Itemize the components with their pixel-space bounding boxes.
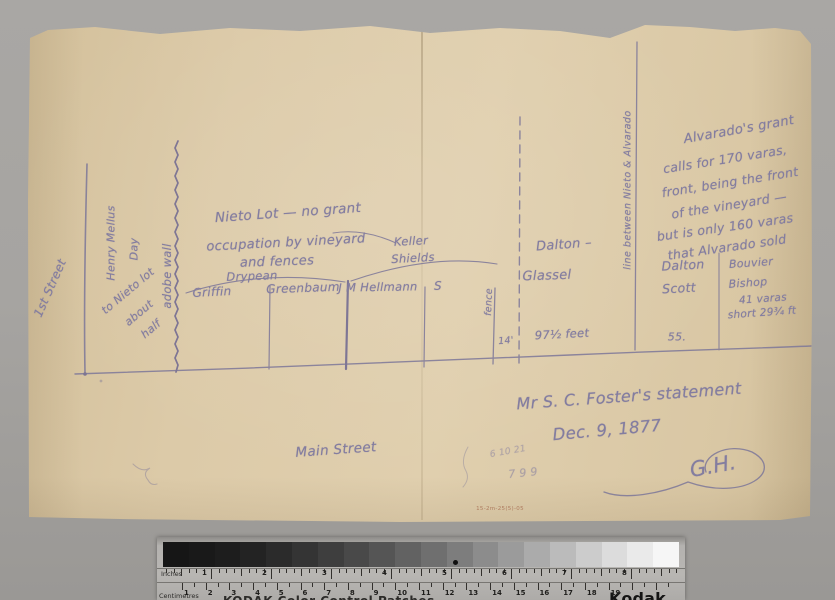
ruler-tick — [538, 583, 539, 590]
grayscale-step — [369, 542, 395, 567]
grayscale-step — [602, 542, 628, 567]
ruler-tick — [496, 569, 497, 573]
ruler-tick — [294, 569, 295, 573]
grayscale-step — [447, 542, 473, 567]
label-hellman: J M Hellmann — [338, 279, 417, 294]
ruler-tick — [489, 569, 490, 573]
ruler-number: 15 — [516, 589, 526, 597]
grayscale-step — [421, 542, 447, 567]
scribble-curl — [463, 447, 468, 487]
ruler-tick — [369, 569, 370, 573]
ruler-number: 5 — [442, 569, 447, 577]
ruler-number: 2 — [262, 569, 267, 577]
ruler-tick — [668, 583, 669, 587]
ruler-tick — [429, 569, 430, 573]
ruler-tick — [443, 583, 444, 590]
ruler-tick — [451, 569, 452, 579]
ruler-tick — [196, 569, 197, 573]
tiny-red-annotation: 15-2m-25(5)-05 — [476, 506, 524, 512]
ruler-tick — [519, 569, 520, 573]
kodak-scale-ruler: Inches Centimetres KODAK Color Control P… — [157, 537, 685, 600]
ruler-tick — [182, 583, 183, 590]
ruler-tick — [361, 569, 362, 576]
document-paper: 1st Street Henry Mellus Day to Nieto lot… — [28, 22, 813, 522]
ruler-tick — [391, 569, 392, 579]
ruler-number: 7 — [562, 569, 567, 577]
ruler-tick — [586, 569, 587, 573]
ruler-tick — [541, 569, 542, 576]
ruler-number: 4 — [255, 589, 260, 597]
ruler-tick — [455, 583, 456, 587]
main-street-line — [75, 346, 811, 374]
grayscale-step — [524, 542, 550, 567]
ruler-tick — [407, 583, 408, 587]
ruler-tick — [676, 569, 677, 573]
label-97-feet: 97½ feet — [534, 326, 589, 343]
ruler-tick — [324, 583, 325, 590]
ruler-tick — [571, 569, 572, 579]
ruler-tick — [459, 569, 460, 573]
ruler-tick — [579, 569, 580, 573]
ruler-tick — [229, 583, 230, 590]
ruler-tick — [206, 583, 207, 590]
label-day: Day — [128, 238, 141, 261]
ruler-tick — [194, 583, 195, 587]
ruler-tick — [646, 569, 647, 573]
ruler-tick — [421, 569, 422, 576]
ruler-tick — [431, 583, 432, 587]
ruler-tick — [279, 569, 280, 573]
pencil-foot-dot — [83, 372, 87, 376]
ruler-tick — [219, 569, 220, 573]
ruler-tick — [436, 569, 437, 573]
ruler-tick — [616, 569, 617, 573]
ruler-tick — [226, 569, 227, 573]
ruler-tick — [189, 569, 190, 573]
grayscale-step — [266, 542, 292, 567]
ruler-number: 17 — [563, 589, 573, 597]
ruler-number: 2 — [208, 589, 213, 597]
ruler-number: 10 — [397, 589, 407, 597]
ruler-tick — [561, 583, 562, 590]
grayscale-step — [292, 542, 318, 567]
ruler-tick — [336, 583, 337, 587]
ruler-number: 1 — [202, 569, 207, 577]
ruler-number: 18 — [587, 589, 597, 597]
ruler-tick — [339, 569, 340, 573]
ruler-tick — [383, 583, 384, 587]
ruler-number: 16 — [540, 589, 550, 597]
ruler-tick — [301, 569, 302, 576]
grayscale-step — [473, 542, 499, 567]
ruler-number: 7 — [326, 589, 331, 597]
ruler-tick — [620, 583, 621, 587]
ruler-tick — [669, 569, 670, 573]
ruler-tick — [286, 569, 287, 573]
ruler-tick — [594, 569, 595, 573]
ruler-tick — [654, 569, 655, 573]
first-street-line — [85, 164, 87, 373]
ruler-tick — [639, 569, 640, 573]
adobe-wall-line — [175, 141, 178, 372]
grayscale-step — [163, 542, 189, 567]
ruler-number: 3 — [231, 589, 236, 597]
ruler-tick — [474, 569, 475, 573]
pencil-stray-dot — [100, 380, 103, 383]
grayscale-step — [395, 542, 421, 567]
ruler-tick — [514, 583, 515, 590]
label-dalton-glassel-2: Glassel — [522, 268, 571, 285]
ruler-tick — [644, 583, 645, 587]
label-dalton: Dalton — [661, 256, 705, 273]
ruler-tick — [301, 583, 302, 590]
ruler-tick — [481, 569, 482, 576]
ruler-tick — [253, 583, 254, 590]
nieto-alvarado-line — [635, 42, 637, 350]
label-14-feet: 14' — [498, 335, 515, 347]
ruler-tick — [354, 569, 355, 573]
ruler-tick — [511, 569, 512, 579]
label-bishop: Bishop — [728, 275, 768, 291]
ruler-number: 5 — [279, 589, 284, 597]
ruler-tick — [466, 583, 467, 590]
grayscale-step — [318, 542, 344, 567]
ruler-tick — [360, 583, 361, 587]
ruler-tick — [312, 583, 313, 587]
grayscale-step — [627, 542, 653, 567]
label-fence: fence — [483, 288, 495, 316]
ruler-tick — [478, 583, 479, 587]
ruler-tick — [348, 583, 349, 590]
ruler-tick — [406, 569, 407, 573]
ruler-tick — [556, 569, 557, 573]
label-boundary-line: line between Nieto & Alvarado — [623, 110, 634, 270]
ruler-tick — [490, 583, 491, 590]
grayscale-step — [498, 542, 524, 567]
inches-label: Inches — [161, 570, 182, 578]
ruler-tick — [249, 569, 250, 573]
label-greenbaum: Greenbaum — [266, 280, 340, 297]
ruler-tick — [211, 569, 212, 579]
grayscale-step — [344, 542, 370, 567]
ruler-tick — [346, 569, 347, 573]
photograph-background: 1st Street Henry Mellus Day to Nieto lot… — [0, 0, 835, 600]
ruler-tick — [271, 569, 272, 579]
ruler-number: 11 — [421, 589, 431, 597]
grayscale-step — [240, 542, 266, 567]
ruler-tick — [656, 583, 657, 590]
ruler-tick — [502, 583, 503, 587]
ruler-tick — [218, 583, 219, 587]
ruler-tick — [376, 569, 377, 573]
label-55: 55. — [668, 331, 686, 344]
calibration-dot — [453, 560, 458, 565]
ruler-number: 6 — [303, 589, 308, 597]
label-adobe-wall: adobe wall — [160, 243, 174, 308]
ruler-tick — [632, 583, 633, 590]
grayscale-step — [653, 542, 679, 567]
ruler-tick — [277, 583, 278, 590]
ruler-tick — [241, 583, 242, 587]
label-shields: Shields — [391, 250, 435, 266]
ruler-number: 1 — [184, 589, 189, 597]
ruler-tick — [395, 583, 396, 590]
lot-divider-hellman-s — [424, 287, 425, 367]
signature-flourish — [604, 449, 764, 496]
check-mark — [133, 464, 157, 485]
ruler-number: 13 — [468, 589, 478, 597]
grayscale-step — [215, 542, 241, 567]
ruler-tick — [631, 569, 632, 579]
ruler-number: 12 — [445, 589, 455, 597]
ruler-tick — [419, 583, 420, 590]
ruler-tick — [597, 583, 598, 587]
ruler-tick — [256, 569, 257, 573]
ruler-number: 9 — [374, 589, 379, 597]
ruler-tick — [609, 583, 610, 590]
ruler-tick — [316, 569, 317, 573]
ruler-number: 3 — [322, 569, 327, 577]
ruler-tick — [234, 569, 235, 573]
grayscale-step — [576, 542, 602, 567]
ruler-tick — [549, 569, 550, 573]
label-griffin: Griffin — [192, 284, 232, 300]
ruler-tick — [265, 583, 266, 587]
ruler-tick — [585, 583, 586, 590]
ruler-number: 8 — [350, 589, 355, 597]
label-keller: Keller — [394, 233, 429, 249]
ruler-tick — [241, 569, 242, 576]
grayscale-step — [189, 542, 215, 567]
ruler-tick — [549, 583, 550, 587]
label-henry-mellus: Henry Mellus — [105, 205, 118, 280]
lot-divider-griffin-greenbaum — [269, 286, 270, 369]
ruler-tick — [174, 569, 175, 573]
ruler-number: 8 — [622, 569, 627, 577]
ruler-tick — [526, 569, 527, 573]
ruler-tick — [534, 569, 535, 573]
ruler-tick — [399, 569, 400, 573]
ruler-tick — [609, 569, 610, 573]
ruler-number: 14 — [492, 589, 502, 597]
grayscale-step — [550, 542, 576, 567]
centimetres-label: Centimetres — [159, 592, 199, 600]
ruler-tick — [601, 569, 602, 576]
ruler-tick — [526, 583, 527, 587]
ruler-tick — [573, 583, 574, 587]
ruler-number: 6 — [502, 569, 507, 577]
ruler-tick — [372, 583, 373, 590]
ruler-tick — [661, 569, 662, 576]
dashed-boundary-line — [519, 117, 520, 363]
ruler-tick — [309, 569, 310, 573]
ruler-tick — [166, 569, 167, 573]
ruler-number: 4 — [382, 569, 387, 577]
ruler-tick — [289, 583, 290, 587]
grayscale-wedge — [163, 542, 679, 567]
label-scott: Scott — [662, 280, 697, 297]
ruler-tick — [414, 569, 415, 573]
label-s: S — [434, 279, 442, 293]
ruler-tick — [331, 569, 332, 579]
ruler-tick — [466, 569, 467, 573]
ruler-tick — [181, 569, 182, 576]
ruler-divider-line — [157, 582, 685, 583]
ruler-number: 19 — [611, 589, 621, 597]
